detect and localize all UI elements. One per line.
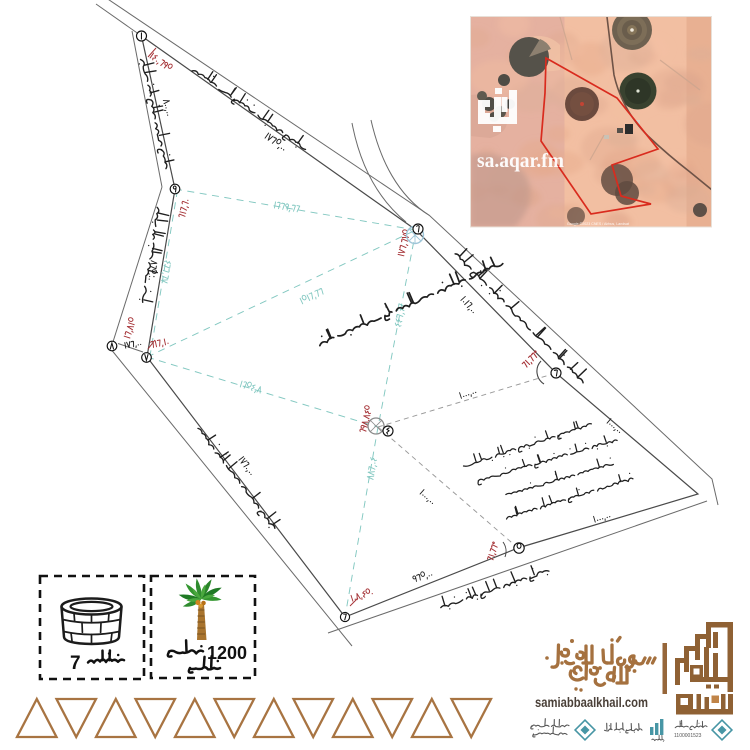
svg-text:7: 7 <box>70 653 81 674</box>
svg-text:1100001523: 1100001523 <box>674 733 702 739</box>
svg-text:1200: 1200 <box>207 643 247 663</box>
svg-text:Google ©2023 CNES / Airbus, La: Google ©2023 CNES / Airbus, Landsat <box>567 222 629 226</box>
svg-text:sa.aqar.fm: sa.aqar.fm <box>477 151 564 172</box>
svg-text:samiabbaalkhail.com: samiabbaalkhail.com <box>535 694 648 710</box>
